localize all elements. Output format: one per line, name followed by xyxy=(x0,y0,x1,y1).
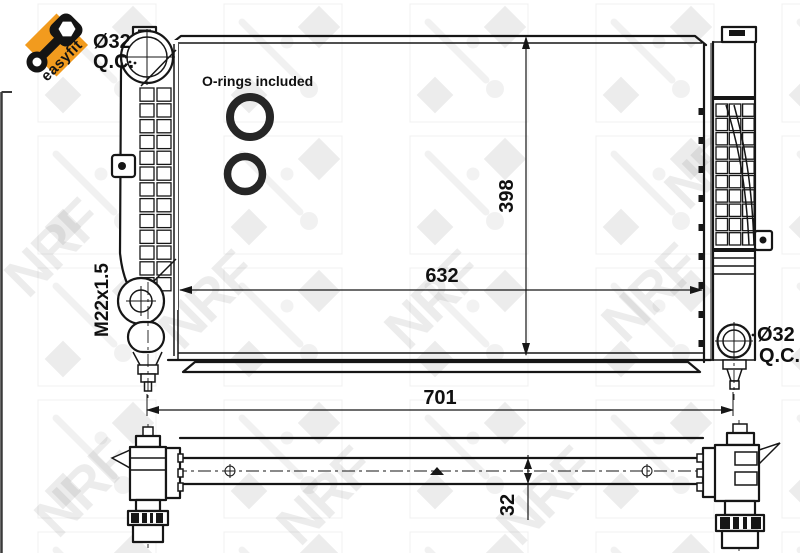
core-edge-notches xyxy=(699,108,705,347)
top-left-port-label: Ø32 Q.C. xyxy=(93,31,136,73)
lower-boss xyxy=(128,322,164,352)
orings-note: O-rings included xyxy=(202,73,313,89)
dim-632-label: 632 xyxy=(425,265,458,287)
easyfit-badge: easyfit xyxy=(25,10,88,85)
m22-fitting xyxy=(118,278,164,324)
right-mount-bracket xyxy=(755,231,772,250)
radiator-technical-drawing: NRF NRF NRF NRF NRF NRF NRF NRF xyxy=(0,0,800,553)
right-port-diameter: Ø32 xyxy=(757,324,795,346)
top-left-port-qc: Q.C. xyxy=(93,51,134,73)
left-mount-bracket xyxy=(112,155,135,177)
left-edge-artifact xyxy=(2,92,13,553)
dimension-701: 701 xyxy=(146,387,734,416)
right-port-qc: Q.C. xyxy=(759,345,800,367)
dim-32-label: 32 xyxy=(497,494,519,516)
bottom-right-fitting xyxy=(697,420,780,551)
m22-thread-label: M22x1.5 xyxy=(92,263,113,337)
drawing-svg: NRF NRF NRF NRF NRF NRF NRF NRF xyxy=(0,0,800,553)
right-port-label: Ø32 Q.C. xyxy=(752,324,800,367)
top-left-port-diameter: Ø32 xyxy=(93,31,131,53)
dim-398-label: 398 xyxy=(496,179,518,212)
dim-701-label: 701 xyxy=(423,387,456,409)
